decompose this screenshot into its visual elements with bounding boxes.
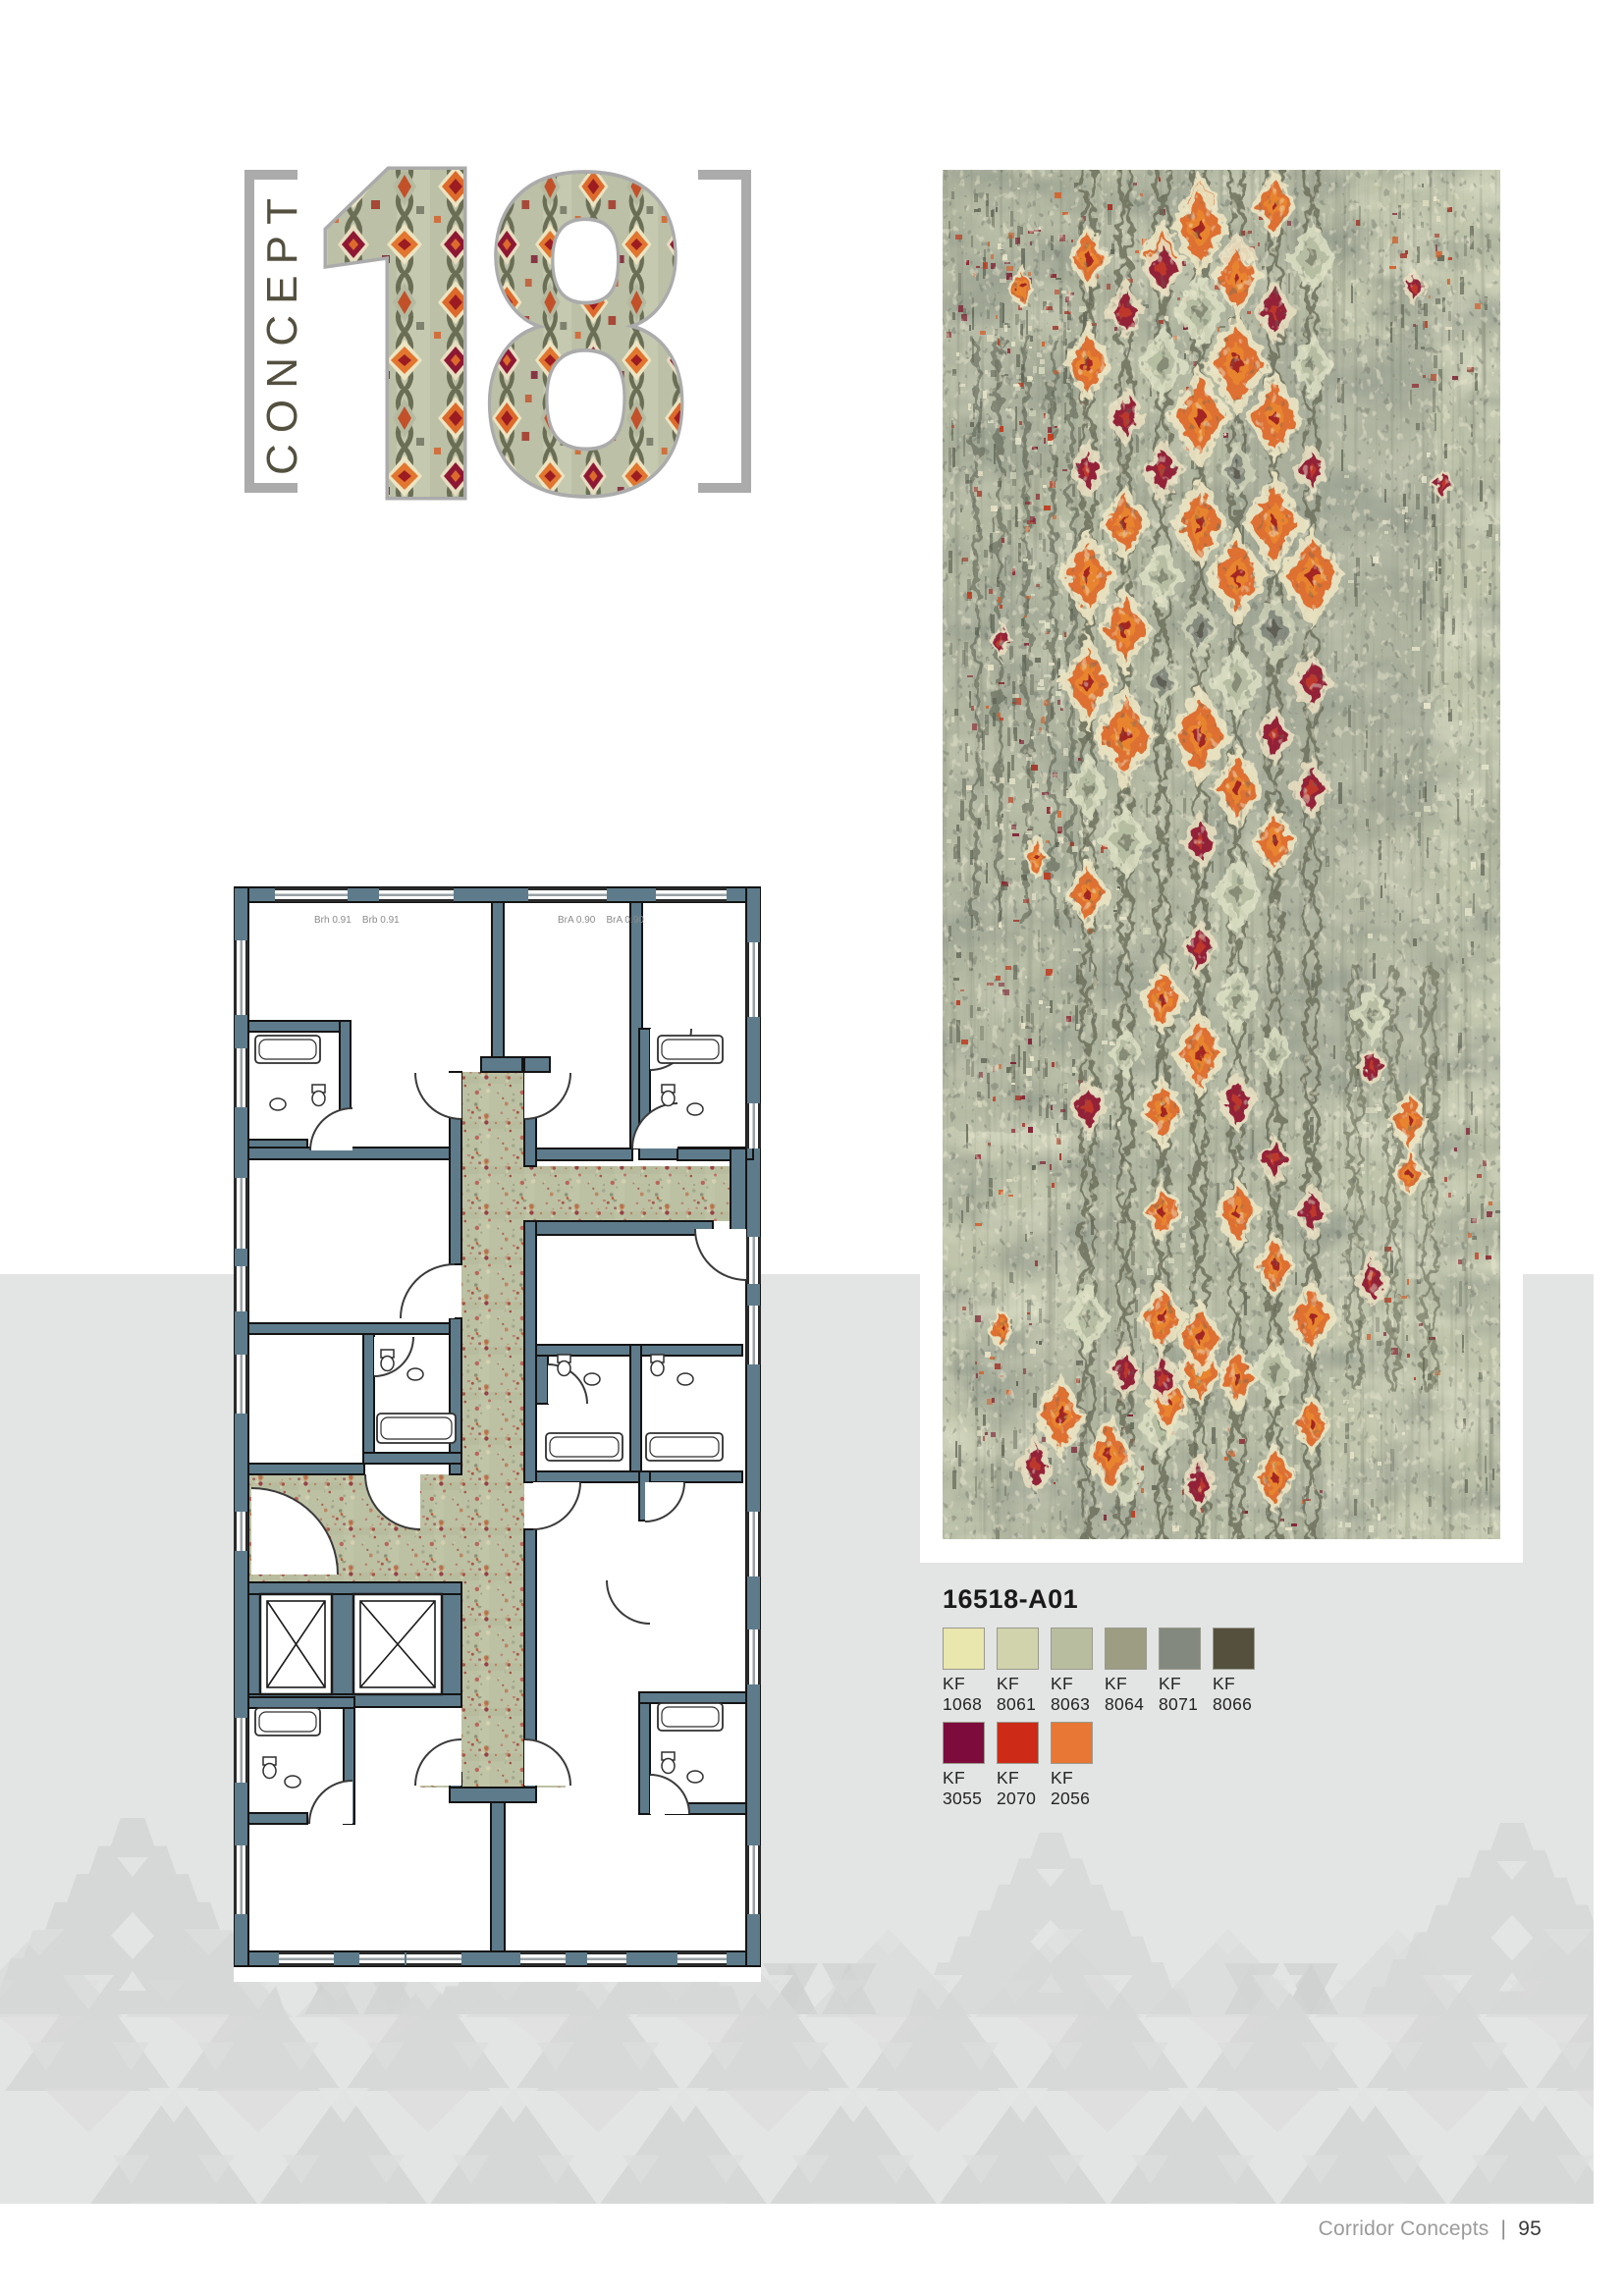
svg-text:BrA 0.90 BrA 0.90: BrA 0.90 BrA 0.90: [558, 915, 644, 926]
svg-text:8: 8: [479, 157, 693, 510]
svg-text:CONCEPT: CONCEPT: [258, 198, 306, 475]
svg-text:Brh 0.91 Brb 0.91: Brh 0.91 Brb 0.91: [314, 915, 400, 926]
